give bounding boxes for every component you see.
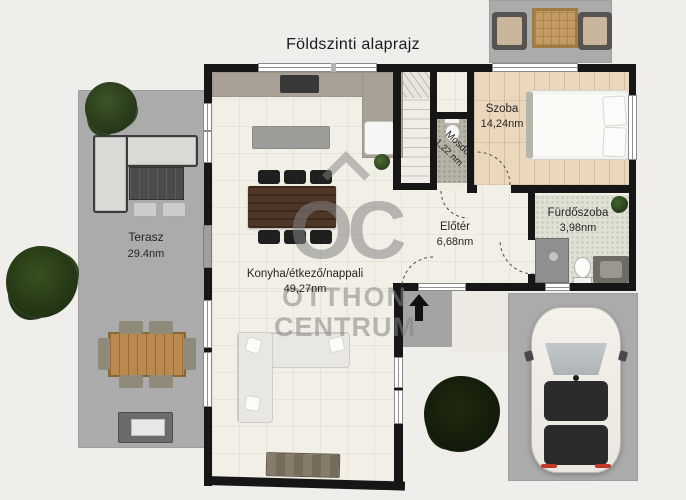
room-area: 14,24nm xyxy=(481,118,524,130)
watermark-brand-line2: CENTRUM xyxy=(245,312,445,343)
room-name: Fürdőszoba xyxy=(548,207,609,219)
room-name: Terasz xyxy=(128,230,163,244)
room-area: 3,98nm xyxy=(560,222,597,234)
room-area: 29.4nm xyxy=(128,248,165,260)
label-szoba: Szoba 14,24nm xyxy=(462,102,542,132)
label-nappali: Konyha/étkező/nappali 49,27nm xyxy=(224,267,386,297)
room-name: Szoba xyxy=(486,103,519,115)
label-terasz: Terasz 29.4nm xyxy=(96,230,196,261)
label-eloter: Előtér 6,68nm xyxy=(415,220,495,250)
room-name: Előtér xyxy=(440,221,470,233)
plan-title: Földszinti alaprajz xyxy=(10,36,686,54)
room-area: 49,27nm xyxy=(284,283,327,295)
room-name: Konyha/étkező/nappali xyxy=(247,268,363,280)
floor-plan: Földszinti alaprajz xyxy=(0,0,686,500)
room-area: 6,68nm xyxy=(437,236,474,248)
label-furdoszoba: Fürdőszoba 3,98nm xyxy=(528,206,628,236)
